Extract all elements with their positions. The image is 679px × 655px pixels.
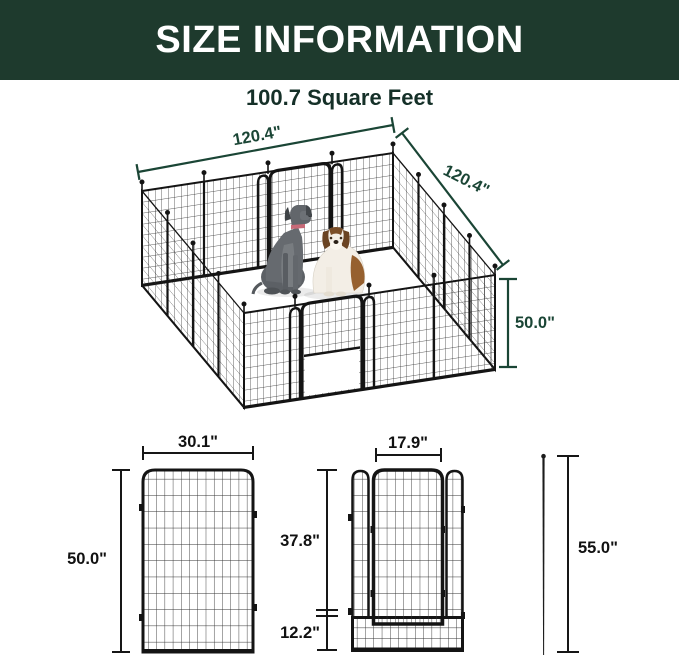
dim-line-door-heights (316, 470, 338, 650)
ground-stake-drawing: 55.0" (541, 454, 618, 655)
panel-drawing: 30.1" 50.0" (67, 433, 257, 652)
dim-label-top-width: 120.4" (231, 123, 283, 150)
dim-line-stake-length (557, 456, 579, 652)
dim-line-panel-height (112, 470, 130, 652)
dim-label-bottom-height: 12.2" (280, 624, 320, 642)
area-subtitle: 100.7 Square Feet (0, 80, 679, 115)
ground-stake (542, 458, 544, 655)
dim-label-door-height: 37.8" (280, 532, 320, 550)
dim-label-panel-height: 50.0" (67, 550, 107, 568)
size-information-image: SIZE INFORMATION 100.7 Square Feet (0, 0, 679, 655)
dim-label-door-width: 17.9" (388, 434, 428, 452)
header-banner: SIZE INFORMATION (0, 0, 679, 80)
dim-label-height: 50.0" (515, 314, 555, 332)
page-title: SIZE INFORMATION (155, 19, 523, 62)
isometric-pen-illustration: 120.4" 120.4" 50.0" (0, 115, 679, 430)
dim-label-panel-width: 30.1" (178, 433, 218, 451)
panel-technical-drawings: 30.1" 50.0" (0, 430, 679, 655)
dim-label-stake-length: 55.0" (578, 539, 618, 557)
door-panel-drawing: 17.9" 37.8" 12.2" (280, 434, 465, 651)
